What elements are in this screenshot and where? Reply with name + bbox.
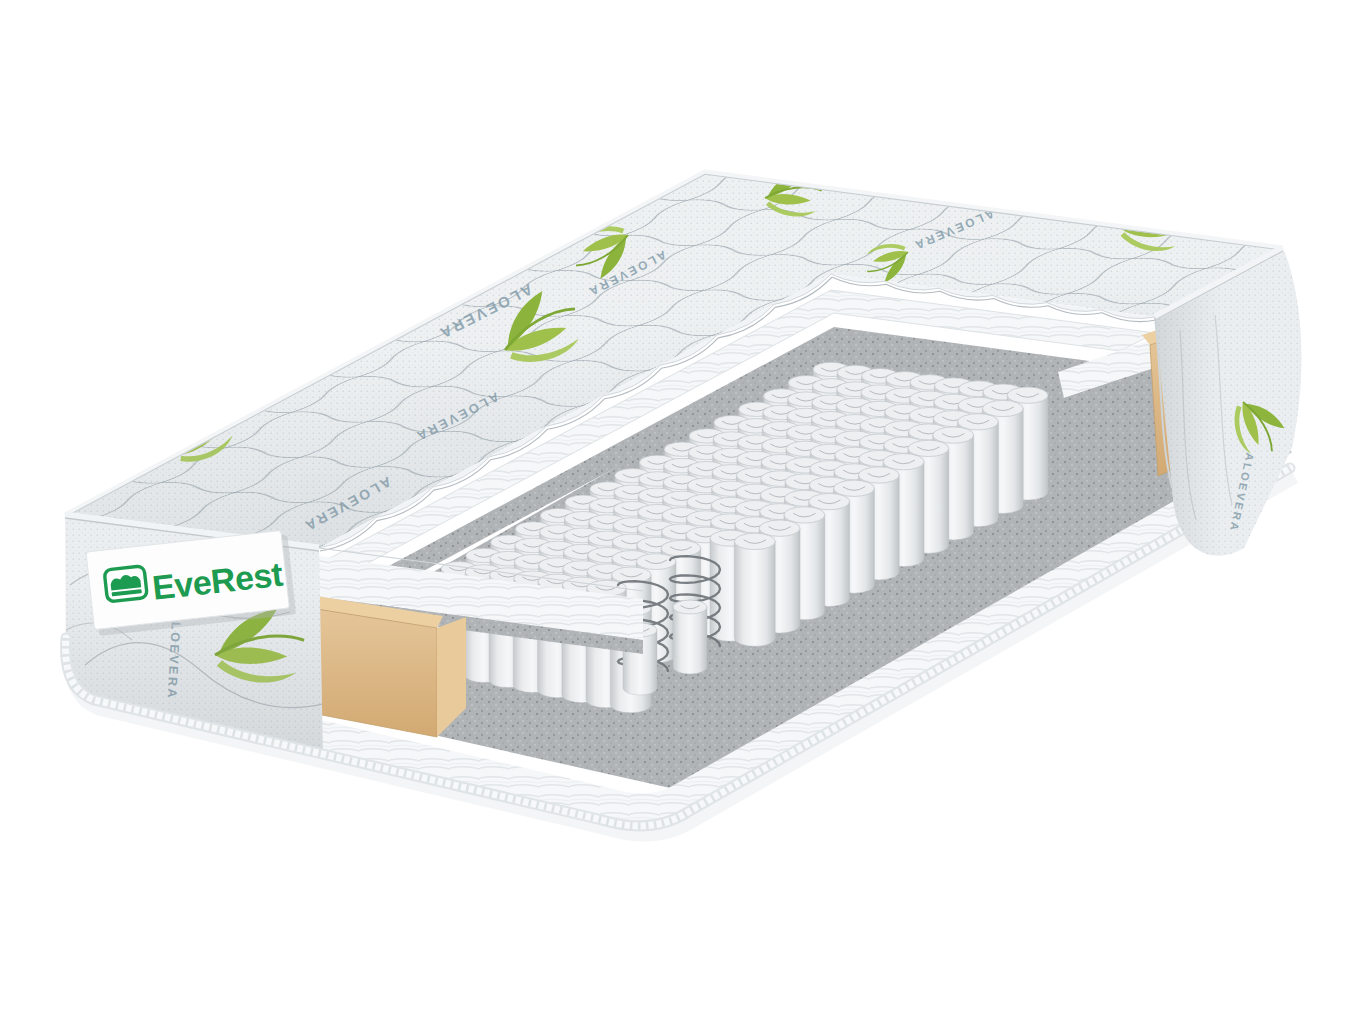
- pocket-spring: [673, 600, 707, 674]
- bed-logo-icon: [104, 566, 147, 602]
- mattress-cutaway: ALOEVERA ALOEVERA ALOEVERA ALOEVERA ALOE…: [0, 0, 1350, 1012]
- product-image: ALOEVERA ALOEVERA ALOEVERA ALOEVERA ALOE…: [0, 0, 1350, 1012]
- pocket-spring: [734, 533, 775, 646]
